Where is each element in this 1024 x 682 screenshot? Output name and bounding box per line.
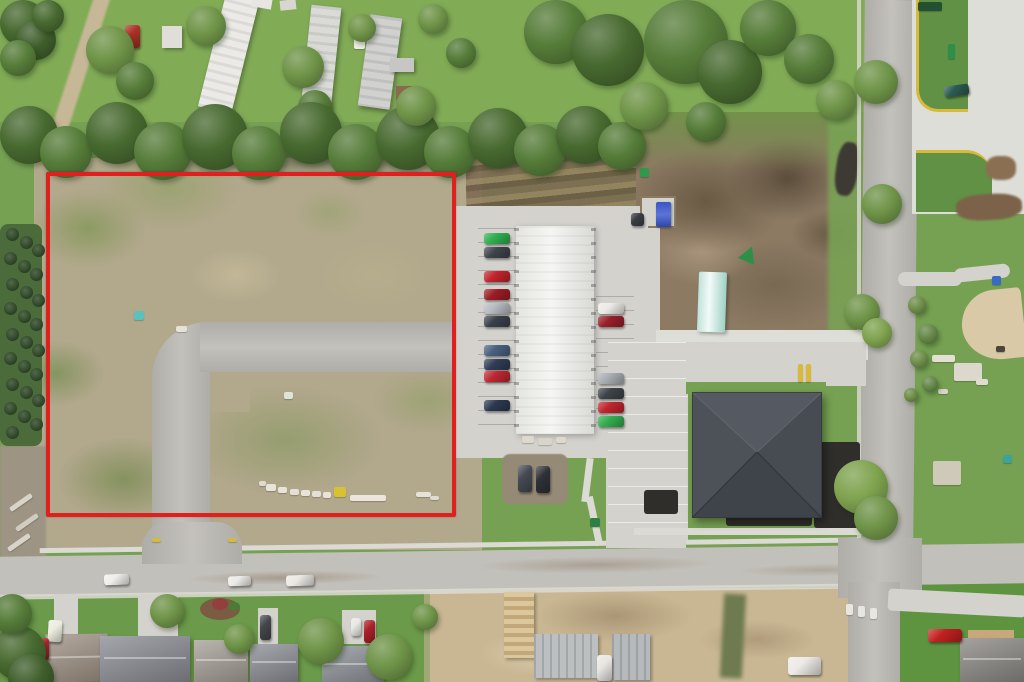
tree (366, 634, 412, 680)
tree (686, 102, 726, 142)
tree (224, 624, 254, 654)
tree (40, 126, 92, 178)
tree (32, 0, 64, 32)
tree (282, 46, 324, 88)
tree (396, 86, 436, 126)
tree (412, 604, 438, 630)
tree (186, 6, 226, 46)
tree (446, 38, 476, 68)
tree (854, 496, 898, 540)
tree (572, 14, 644, 86)
tree (298, 618, 344, 664)
aerial-photo-canvas (0, 0, 1024, 682)
tree (862, 318, 892, 348)
tree (620, 82, 668, 130)
tree (904, 388, 918, 402)
tree (150, 594, 184, 628)
tree (0, 40, 36, 76)
tree (418, 4, 448, 34)
tree (784, 34, 834, 84)
tree (862, 184, 902, 224)
tree (910, 350, 928, 368)
tree (908, 296, 926, 314)
tree (918, 324, 938, 344)
tree (854, 60, 898, 104)
tree (922, 376, 938, 392)
tree (816, 80, 856, 120)
tree (348, 14, 376, 42)
parcel-boundary-outline (46, 172, 456, 517)
tree (116, 62, 154, 100)
